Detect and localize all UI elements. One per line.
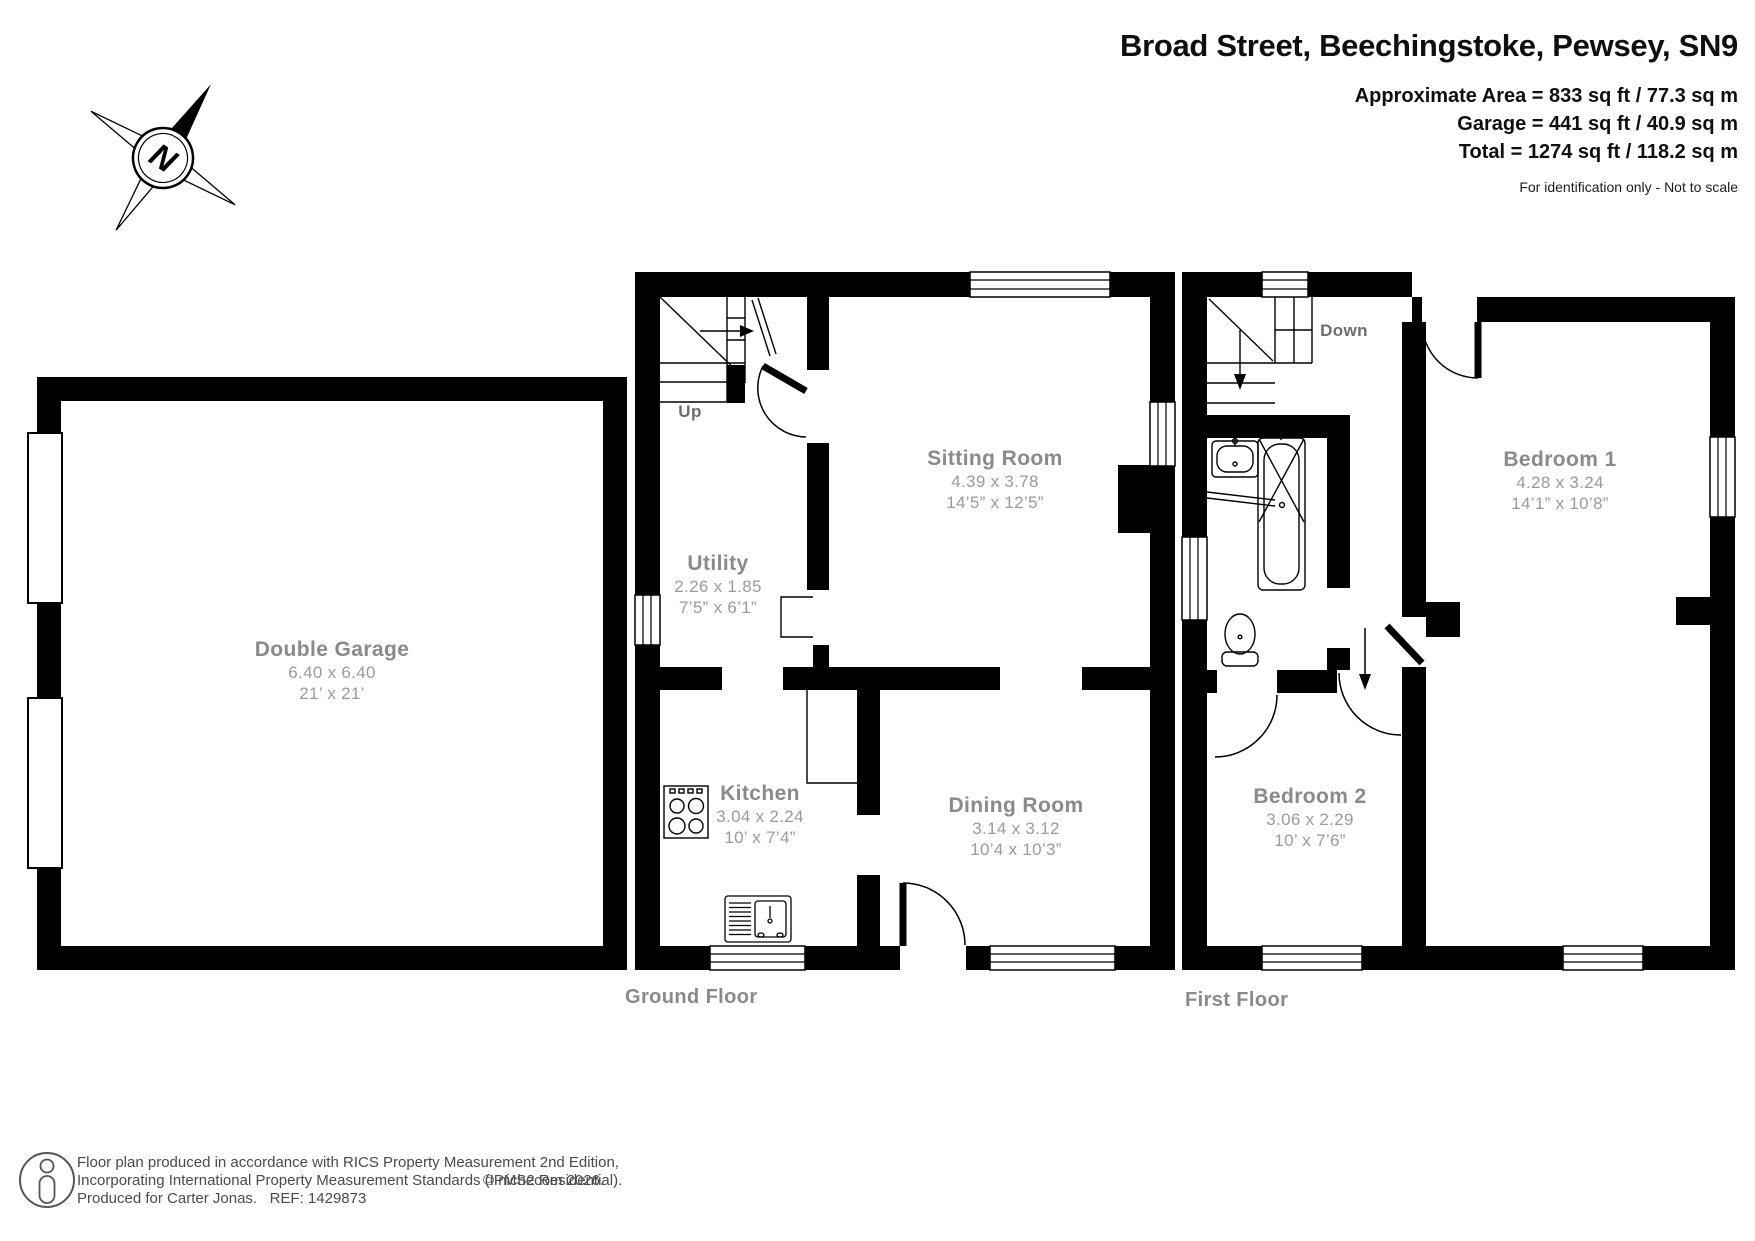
window bbox=[635, 595, 660, 645]
door bbox=[1339, 673, 1401, 735]
garage-area: Garage = 441 sq ft / 40.9 sq m bbox=[1355, 110, 1738, 138]
door bbox=[1215, 695, 1277, 757]
ground-floor-walls bbox=[635, 272, 1175, 970]
room-label-double-garage: Double Garage 6.40 x 6.40 21’ x 21’ bbox=[255, 638, 410, 704]
room-size-imperial: 14’1” x 10’8” bbox=[1503, 493, 1616, 514]
first-floor-walls bbox=[1182, 272, 1735, 970]
footer-line-3: Produced for Carter Jonas. REF: 1429873 bbox=[77, 1190, 366, 1207]
page-title: Broad Street, Beechingstoke, Pewsey, SN9 bbox=[1120, 28, 1738, 64]
room-size-imperial: 21’ x 21’ bbox=[255, 683, 410, 704]
identification-disclaimer: For identification only - Not to scale bbox=[1519, 179, 1738, 195]
stove-icon bbox=[664, 786, 708, 838]
room-name: Bedroom 2 bbox=[1253, 785, 1366, 809]
room-label-kitchen: Kitchen 3.04 x 2.24 10’ x 7’4” bbox=[716, 782, 803, 848]
door bbox=[758, 366, 806, 437]
room-size-metric: 3.14 x 3.12 bbox=[948, 818, 1083, 839]
bath-icon bbox=[1258, 430, 1305, 590]
stairs-down-label: Down bbox=[1320, 321, 1368, 341]
room-name: Sitting Room bbox=[927, 447, 1062, 471]
stairs-up-icon bbox=[660, 297, 776, 402]
window bbox=[970, 272, 1110, 297]
door bbox=[1387, 626, 1422, 663]
room-label-sitting-room: Sitting Room 4.39 x 3.78 14’5” x 12’5” bbox=[927, 447, 1062, 513]
room-size-imperial: 10’4 x 10’3” bbox=[948, 839, 1083, 860]
room-name: Dining Room bbox=[948, 794, 1083, 818]
footer-line-1: Floor plan produced in accordance with R… bbox=[77, 1154, 619, 1171]
total-area: Total = 1274 sq ft / 118.2 sq m bbox=[1355, 138, 1738, 166]
window bbox=[1262, 272, 1308, 297]
window bbox=[990, 946, 1115, 970]
chimney-breast bbox=[807, 690, 857, 783]
room-label-dining-room: Dining Room 3.14 x 3.12 10’4 x 10’3” bbox=[948, 794, 1083, 860]
room-size-imperial: 14’5” x 12’5” bbox=[927, 492, 1062, 513]
floorplan-drawing: N bbox=[0, 0, 1755, 1241]
window bbox=[1563, 946, 1643, 970]
room-name: Utility bbox=[674, 552, 761, 576]
landing-arrow-icon bbox=[1359, 628, 1371, 690]
floorplan-page: N bbox=[0, 0, 1755, 1241]
room-size-metric: 3.06 x 2.29 bbox=[1253, 809, 1366, 830]
window bbox=[1710, 437, 1735, 517]
room-label-bedroom-2: Bedroom 2 3.06 x 2.29 10’ x 7’6” bbox=[1253, 785, 1366, 851]
window bbox=[1150, 402, 1175, 466]
basin-icon bbox=[1212, 438, 1258, 477]
area-summary: Approximate Area = 833 sq ft / 77.3 sq m… bbox=[1355, 82, 1738, 166]
copyright-notice: © nichecom 2026. bbox=[483, 1172, 604, 1189]
room-size-metric: 4.28 x 3.24 bbox=[1503, 472, 1616, 493]
room-name: Kitchen bbox=[716, 782, 803, 806]
approximate-area: Approximate Area = 833 sq ft / 77.3 sq m bbox=[1355, 82, 1738, 110]
first-floor-caption: First Floor bbox=[1185, 989, 1288, 1012]
room-name: Double Garage bbox=[255, 638, 410, 662]
room-label-bedroom-1: Bedroom 1 4.28 x 3.24 14’1” x 10’8” bbox=[1503, 448, 1616, 514]
ground-floor-caption: Ground Floor bbox=[625, 986, 758, 1009]
room-size-imperial: 10’ x 7’4” bbox=[716, 827, 803, 848]
stairs-down-icon bbox=[1207, 297, 1312, 506]
window bbox=[1182, 537, 1207, 620]
window bbox=[710, 946, 805, 970]
compass-rose-icon: N bbox=[44, 37, 283, 277]
sink-icon bbox=[725, 896, 791, 942]
person-icon bbox=[20, 1153, 74, 1207]
room-size-metric: 4.39 x 3.78 bbox=[927, 471, 1062, 492]
room-label-utility: Utility 2.26 x 1.85 7’5” x 6’1” bbox=[674, 552, 761, 618]
room-size-metric: 3.04 x 2.24 bbox=[716, 806, 803, 827]
room-size-imperial: 7’5” x 6’1” bbox=[674, 597, 761, 618]
room-size-metric: 2.26 x 1.85 bbox=[674, 576, 761, 597]
door bbox=[900, 883, 966, 970]
window bbox=[1262, 946, 1362, 970]
chimney-breast bbox=[781, 597, 813, 637]
room-size-imperial: 10’ x 7’6” bbox=[1253, 830, 1366, 851]
toilet-icon bbox=[1222, 614, 1258, 666]
room-size-metric: 6.40 x 6.40 bbox=[255, 662, 410, 683]
room-name: Bedroom 1 bbox=[1503, 448, 1616, 472]
stairs-up-label: Up bbox=[678, 402, 701, 422]
door bbox=[1422, 322, 1478, 378]
